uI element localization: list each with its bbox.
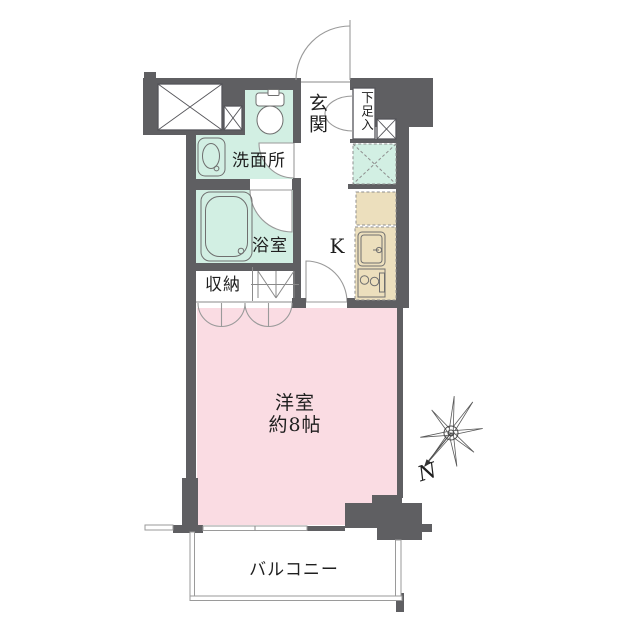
bathroom-label: 浴室 [240, 231, 300, 256]
toilet-icon [256, 90, 284, 135]
balcony-label: バルコニー [234, 555, 354, 580]
main-room-name: 洋室 [245, 392, 345, 414]
shoebox-label: 下足入 [357, 91, 376, 132]
main-room-size: 約8帖 [245, 414, 345, 436]
hanger-pipe-icon [251, 271, 299, 298]
kitchen-label: K [324, 234, 350, 258]
pipe-space-right-icon [377, 119, 396, 139]
pipe-space-icon [224, 106, 242, 130]
closet-label: 収納 [194, 270, 252, 295]
washer-space [353, 144, 396, 184]
fridge-space [356, 192, 396, 225]
genkan-label: 玄関 [304, 93, 331, 135]
window [145, 525, 307, 531]
compass-rose [420, 396, 482, 467]
main-room-label: 洋室 約8帖 [245, 392, 345, 436]
entrance-door-arc [296, 20, 350, 82]
washroom-label: 洗面所 [228, 146, 290, 171]
floorplan: 玄関 下足入 洗面所 浴室 K 収納 洋室 約8帖 バルコニー N [0, 0, 640, 640]
shaft-box-icon [158, 84, 222, 130]
room-door-arc [306, 261, 347, 302]
